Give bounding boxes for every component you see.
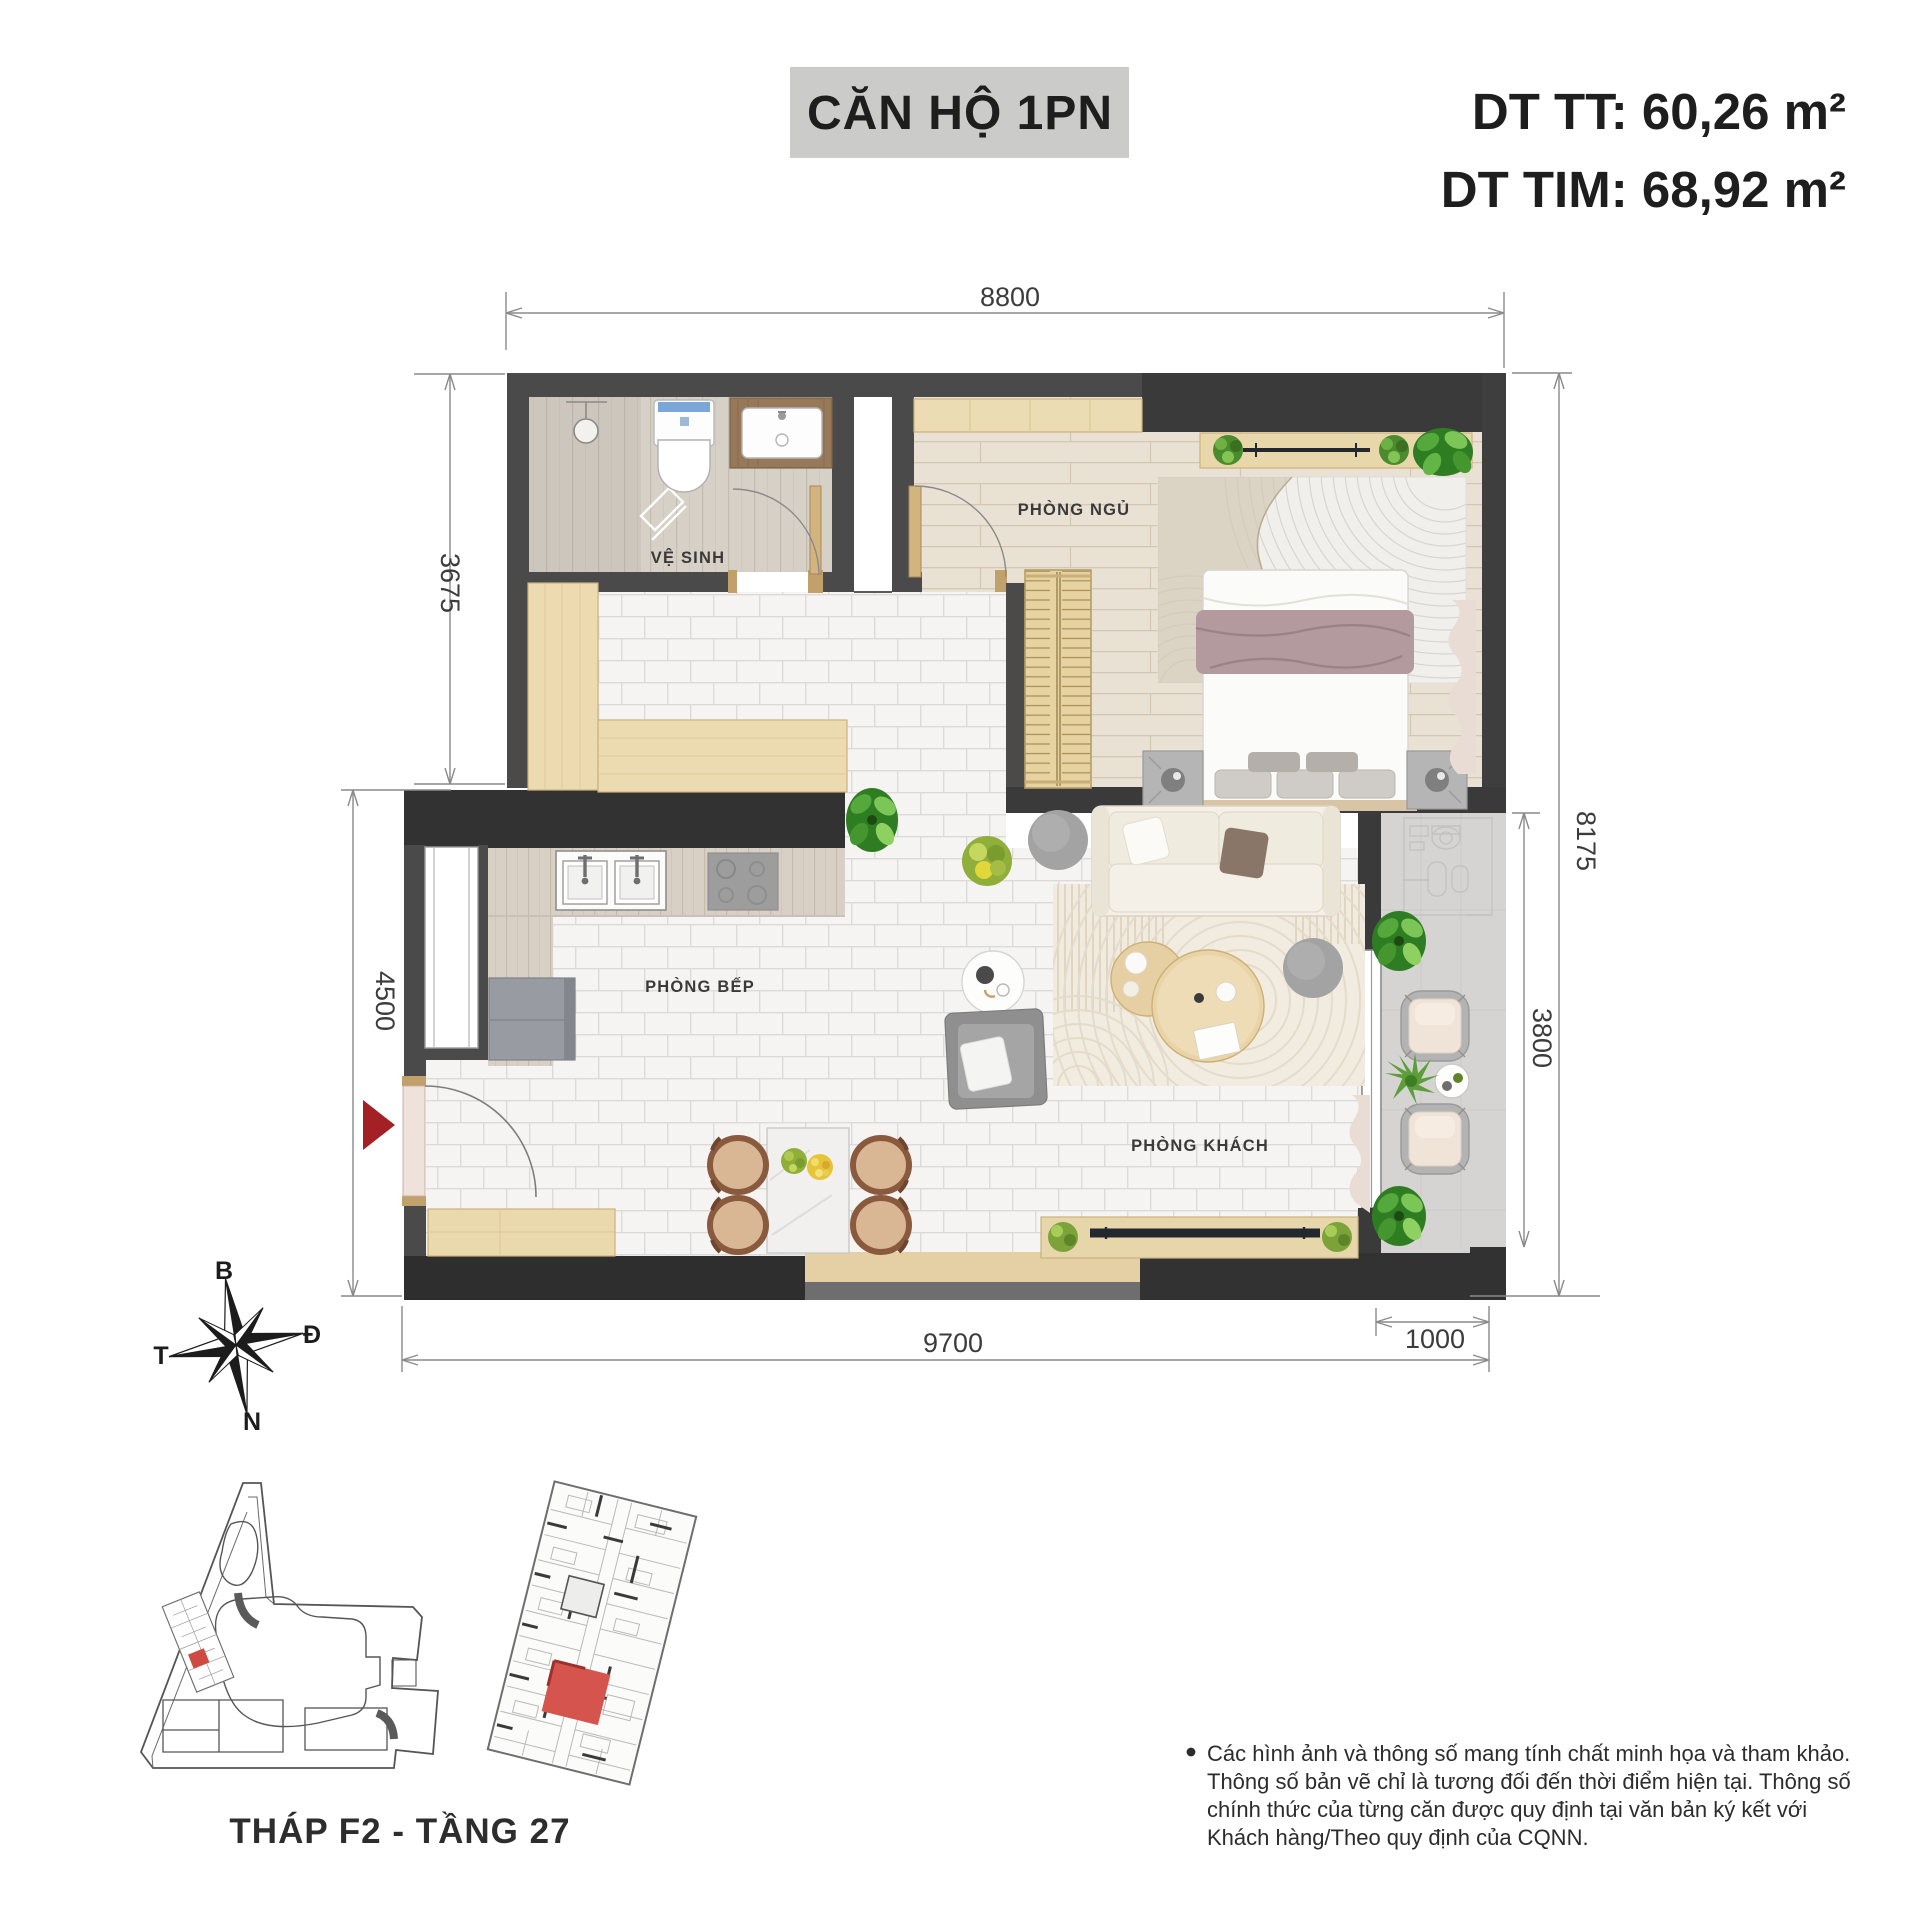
svg-text:8175: 8175 [1571, 811, 1601, 871]
svg-text:PHÒNG NGỦ: PHÒNG NGỦ [1018, 500, 1131, 519]
svg-text:3800: 3800 [1527, 1008, 1557, 1068]
svg-text:Khách hàng/Theo quy định của C: Khách hàng/Theo quy định của CQNN. [1207, 1825, 1589, 1850]
svg-text:PHÒNG KHÁCH: PHÒNG KHÁCH [1131, 1136, 1269, 1155]
svg-text:B: B [215, 1257, 233, 1285]
svg-text:N: N [243, 1408, 261, 1436]
svg-text:PHÒNG BẾP: PHÒNG BẾP [645, 977, 755, 996]
svg-text:Các hình ảnh và thông số mang: Các hình ảnh và thông số mang tính chất … [1207, 1741, 1850, 1766]
svg-text:T: T [153, 1342, 168, 1370]
svg-text:CĂN HỘ 1PN: CĂN HỘ 1PN [807, 85, 1113, 140]
svg-text:DT TT: 60,26 m²: DT TT: 60,26 m² [1472, 83, 1846, 140]
svg-text:Thông số bản vẽ chỉ là tương đ: Thông số bản vẽ chỉ là tương đối đến thờ… [1207, 1769, 1851, 1794]
svg-text:DT TIM: 68,92 m²: DT TIM: 68,92 m² [1441, 161, 1846, 218]
svg-text:8800: 8800 [980, 282, 1040, 312]
svg-text:3675: 3675 [435, 553, 465, 613]
svg-text:4500: 4500 [370, 971, 400, 1031]
svg-text:9700: 9700 [923, 1328, 983, 1358]
svg-text:Đ: Đ [303, 1321, 321, 1349]
svg-text:chính thức của từng căn được q: chính thức của từng căn được quy định tạ… [1207, 1797, 1807, 1822]
svg-text:THÁP F2 - TẦNG 27: THÁP F2 - TẦNG 27 [229, 1811, 570, 1851]
svg-text:VỆ SINH: VỆ SINH [651, 548, 725, 567]
svg-text:1000: 1000 [1405, 1324, 1465, 1354]
